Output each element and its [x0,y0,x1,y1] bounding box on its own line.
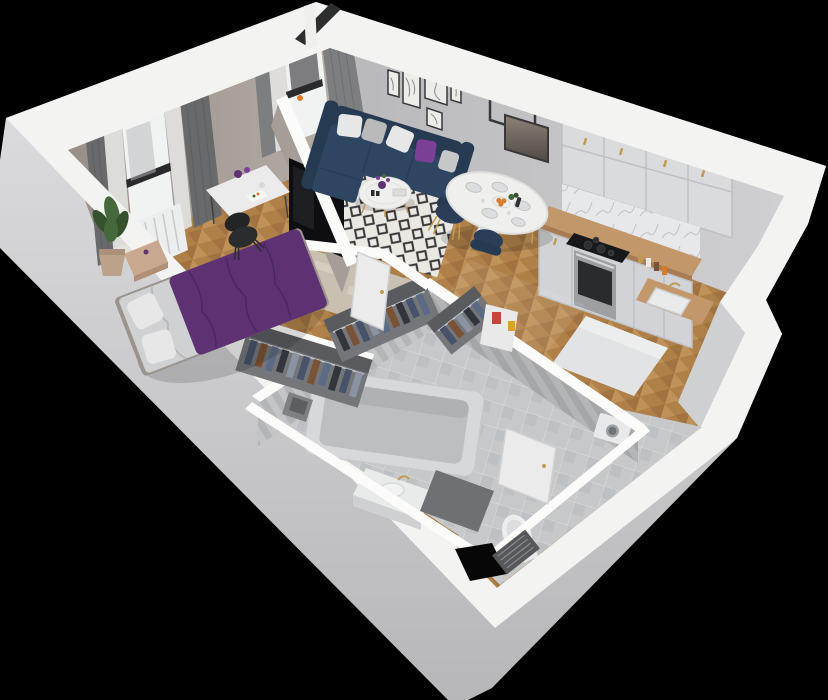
candle [376,191,380,196]
storage-box [492,312,501,324]
vase [244,167,250,173]
storage-box [501,316,509,327]
corridor-door [351,252,390,330]
storage-box [508,321,515,331]
vase [234,170,242,178]
balcony-post [304,3,317,49]
desk-lamp [259,182,265,188]
decor-item [144,250,149,255]
books [393,189,406,196]
vase [378,181,386,189]
door-handle [542,464,546,468]
door-handle [380,290,384,294]
floorplan-3d-render [0,0,828,700]
apartment-scene [0,0,828,700]
candle [371,190,375,196]
balcony-item [297,95,303,101]
wall-art-frame [388,70,399,97]
shelf-unit [480,304,518,352]
